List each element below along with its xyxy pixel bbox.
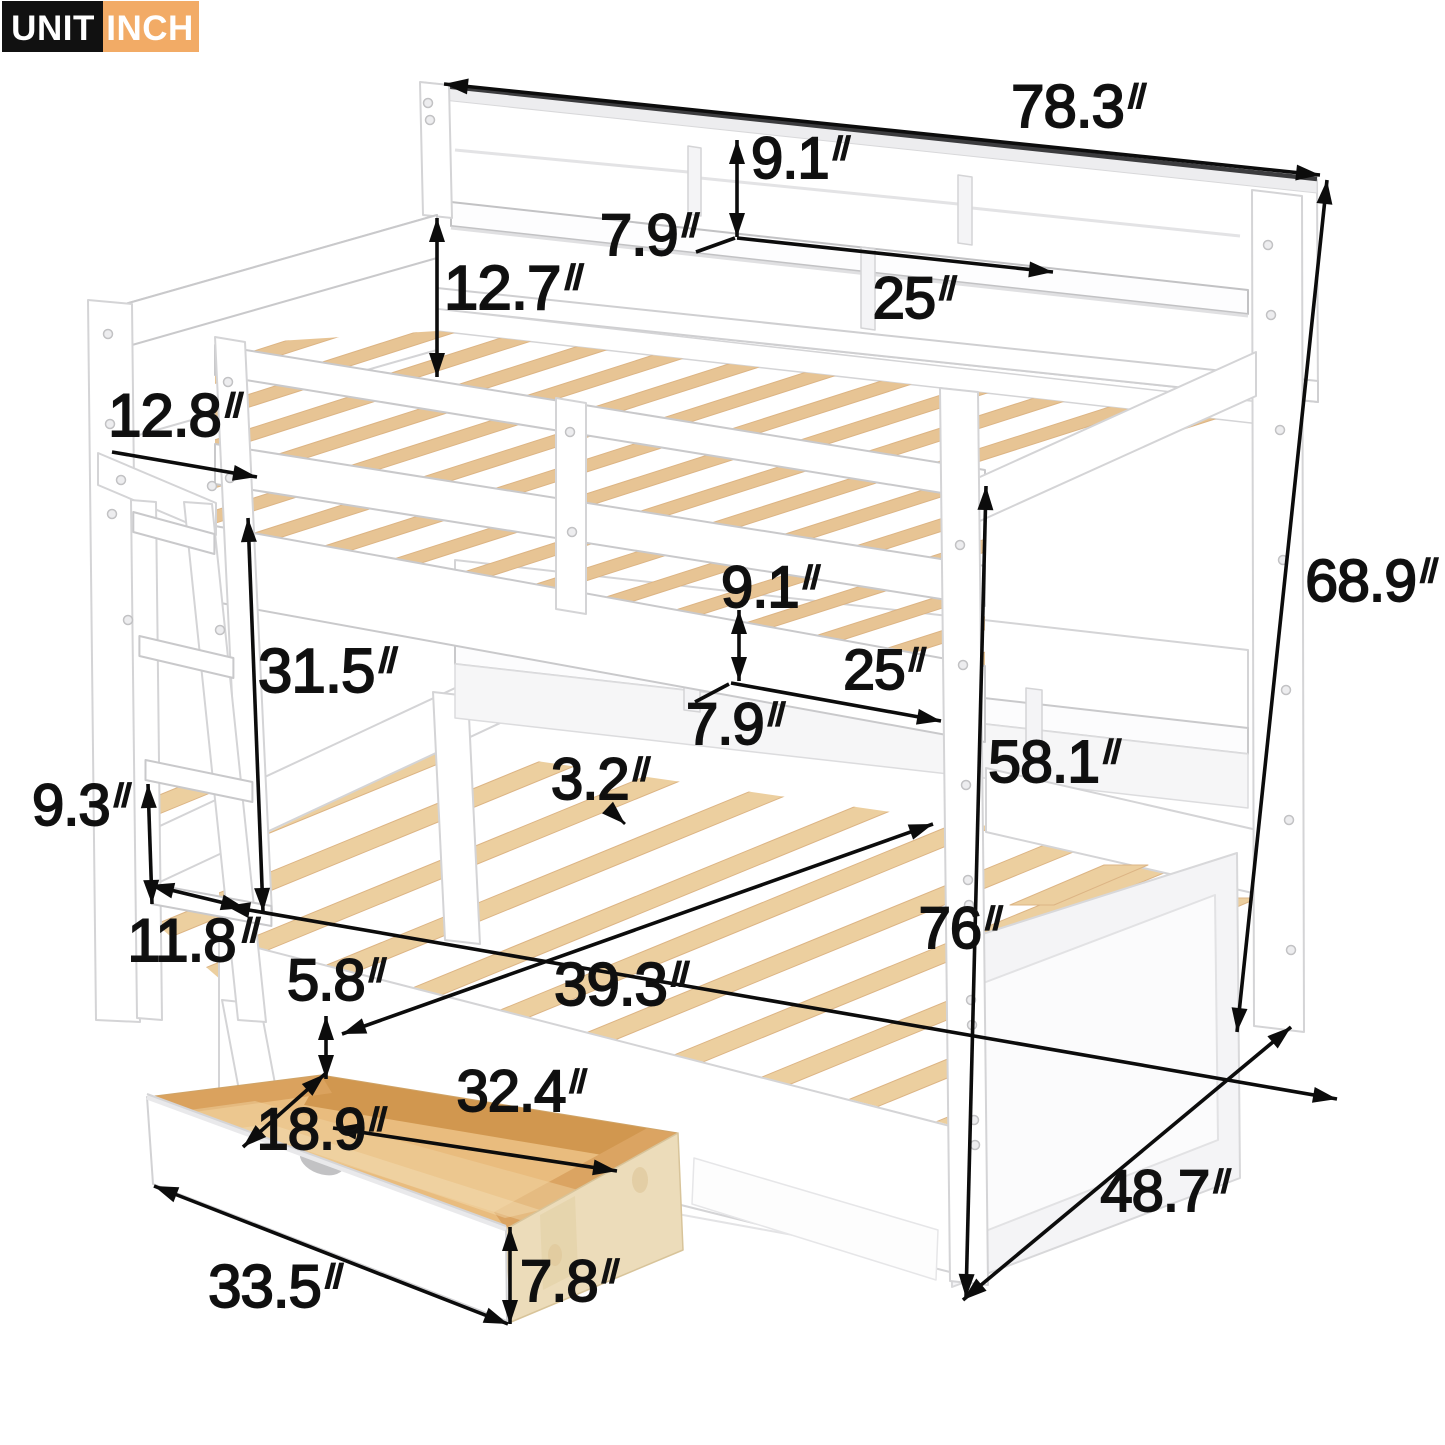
svg-text:12.7: 12.7	[444, 254, 561, 323]
svg-text:9.1: 9.1	[721, 555, 799, 620]
svg-text:12.8: 12.8	[108, 382, 221, 449]
svg-text:33.5: 33.5	[208, 1253, 321, 1320]
svg-text:25: 25	[843, 638, 904, 702]
svg-text:7.9: 7.9	[600, 203, 678, 268]
svg-text:3.2: 3.2	[551, 747, 629, 812]
svg-text:32.4: 32.4	[456, 1059, 565, 1124]
svg-text:58.1: 58.1	[988, 729, 1099, 795]
svg-text:5.8: 5.8	[287, 948, 365, 1013]
svg-text:11.8: 11.8	[127, 907, 235, 974]
svg-text:9.1: 9.1	[751, 126, 829, 191]
svg-text:18.9: 18.9	[256, 1097, 365, 1162]
svg-text:UNIT: UNIT	[11, 9, 95, 48]
svg-text:68.9: 68.9	[1305, 548, 1416, 614]
svg-text:25: 25	[873, 266, 936, 331]
svg-text:9.3: 9.3	[32, 773, 110, 838]
svg-text:31.5: 31.5	[258, 637, 375, 706]
svg-text:INCH: INCH	[106, 9, 194, 48]
svg-text:48.7: 48.7	[1100, 1159, 1209, 1224]
svg-text:7.8: 7.8	[520, 1249, 598, 1314]
svg-text:7.9: 7.9	[686, 692, 764, 757]
svg-text:76: 76	[919, 896, 982, 961]
svg-text:39.3: 39.3	[554, 951, 667, 1018]
svg-text:78.3: 78.3	[1011, 73, 1124, 140]
